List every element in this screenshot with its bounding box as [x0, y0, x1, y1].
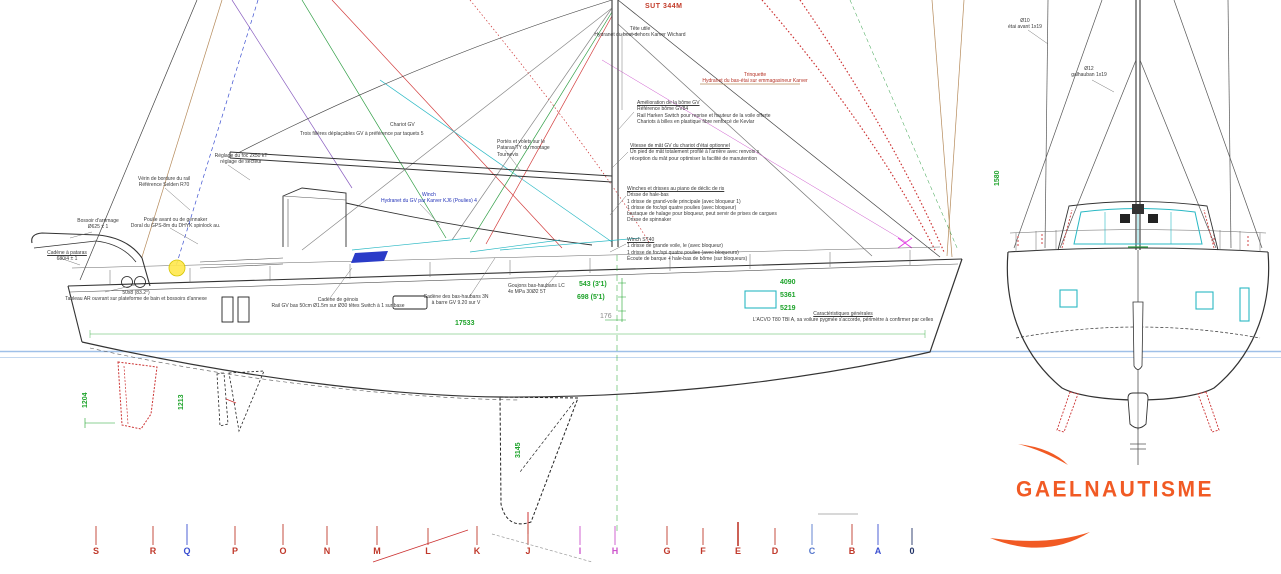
- annotation-goujons: Goujons bas-haubans LC4x MPa 30Ø2 5T: [508, 283, 578, 296]
- annotation-pataras: Cadène à pataras680/4 ± 1: [28, 250, 106, 263]
- annotation-winch: Winch ST401 drisse de grande voile, le (…: [627, 237, 839, 262]
- annotation-rail: Amélioration de la bôme GVRéférence bôme…: [637, 100, 842, 125]
- annotation-winch-blue: WinchHydranet du GV par Karver KJ6 (Poul…: [368, 192, 490, 205]
- stations-ruler: [96, 514, 912, 562]
- station-letter: S: [93, 546, 99, 556]
- annotation-masthead: Tête utileHydranet du bout-dehors Karver…: [585, 26, 695, 39]
- dim-draft-c: 176: [600, 313, 612, 320]
- station-letter: H: [612, 546, 619, 556]
- annotation-foc: Réglage du foc 2x50 kTréglage de secteur: [205, 153, 277, 166]
- dim-draft-b: 698 (5'1): [577, 294, 605, 301]
- station-letter: R: [150, 546, 157, 556]
- station-letter: D: [772, 546, 779, 556]
- station-letter: O: [279, 546, 286, 556]
- red-sail-title: SUT 344M: [645, 3, 682, 10]
- dim-front-height: 1580: [994, 170, 1001, 186]
- side-view-keel: [500, 397, 578, 534]
- station-letter: G: [663, 546, 670, 556]
- annotation-pataras-ty: Portés et volets sur lePataras/TY du mon…: [497, 139, 559, 158]
- station-letter: N: [324, 546, 331, 556]
- annotation-poulie: Poulie avant ou de gennakerDoral du GPS-…: [118, 217, 233, 230]
- dim-rudder-b: 1213: [178, 394, 185, 410]
- annotation-transom: 50x8 (83.2°)Tableau AR ouvrant sur plate…: [40, 290, 232, 303]
- annotation-mastfoot: Vitesse de mât GV du chariot d'étai opti…: [630, 143, 842, 162]
- station-letter: J: [525, 546, 530, 556]
- gaelnautisme-logo-text: GAELNAUTISME: [1016, 477, 1214, 502]
- station-letter: E: [735, 546, 741, 556]
- annotation-front-d2: Ø12galhauban 1x19: [1058, 66, 1120, 79]
- annotation-chariot: Chariot GV: [390, 122, 432, 128]
- dim-fb2: 5361: [780, 292, 796, 299]
- station-letter: B: [849, 546, 856, 556]
- waterline: [0, 352, 1281, 358]
- station-letter: K: [474, 546, 481, 556]
- annotation-verin: Vérin de bordure du railRéférence Selden…: [124, 176, 204, 189]
- annotation-piano: Winches et drisses au piano de déclic de…: [627, 186, 845, 224]
- station-letter: Q: [183, 546, 190, 556]
- dim-loa: 17533: [455, 320, 474, 327]
- annotation-genois: Cadène de génoisRail GV bas 50cm Ø1.5m s…: [262, 297, 414, 310]
- dim-keel-span: 3145: [515, 442, 522, 458]
- sailboat-plan-page: SUT 344M Tête utileHydranet du bout-deho…: [0, 0, 1281, 574]
- station-letter: F: [700, 546, 706, 556]
- annotation-haubans: Cadène des bas-haubans 3Nà barre GV 9.20…: [410, 294, 502, 307]
- station-letter: L: [425, 546, 431, 556]
- front-view: [1007, 0, 1268, 465]
- annotation-caracteristiques: Caractéristiques généralesL'ACVO T80 TBI…: [752, 311, 934, 324]
- dim-rudder-a: 1204: [82, 392, 89, 408]
- station-letter: A: [875, 546, 882, 556]
- dim-fb1: 4090: [780, 279, 796, 286]
- station-letter: C: [809, 546, 816, 556]
- station-letter: M: [373, 546, 381, 556]
- annotation-front-d1: Ø10étai avant 1x19: [996, 18, 1054, 31]
- station-letter: P: [232, 546, 238, 556]
- annotation-trinquette: TrinquetteHydranet du bas-étai sur emmag…: [700, 72, 810, 85]
- dim-draft-a: 543 (3'1): [579, 281, 607, 288]
- station-letter: 0: [909, 546, 914, 556]
- annotation-filieres: Trois filières déplaçables GV à préféren…: [300, 131, 472, 137]
- station-letter: I: [579, 546, 582, 556]
- dim-fb3: 5219: [780, 305, 796, 312]
